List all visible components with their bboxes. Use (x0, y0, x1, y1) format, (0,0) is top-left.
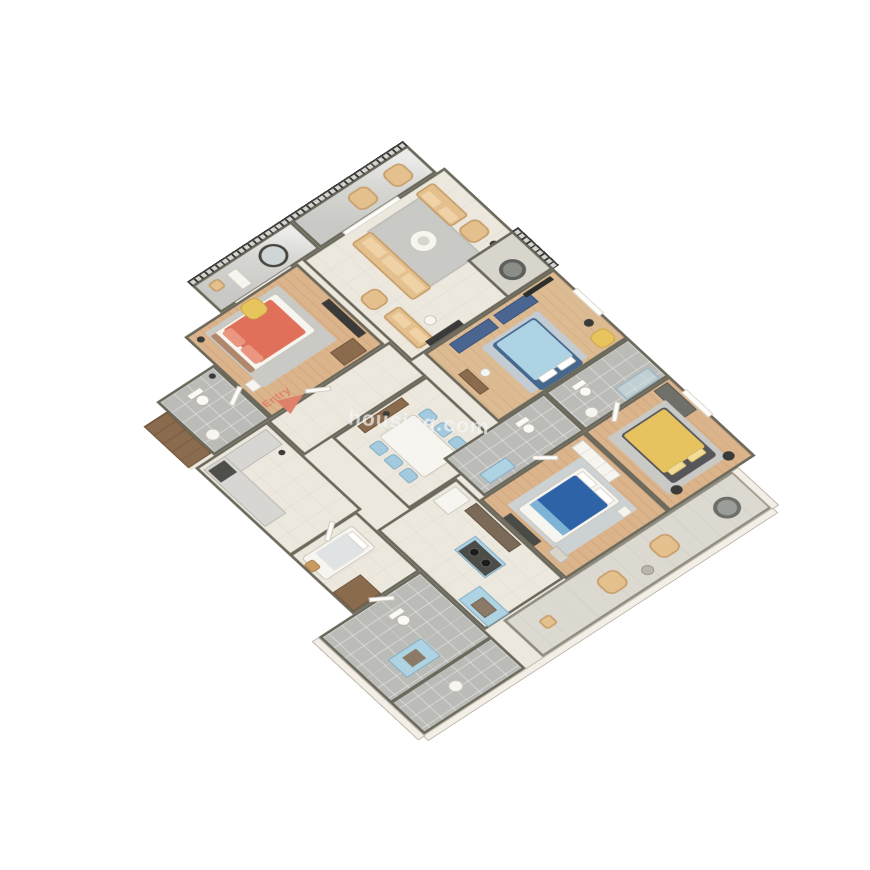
terrace-planter (538, 614, 559, 630)
table-lamp (277, 449, 287, 457)
washbasin (582, 405, 602, 420)
washbasin (202, 426, 223, 442)
master-door (532, 455, 558, 460)
terrace-side-table (639, 563, 657, 577)
stool (582, 317, 596, 328)
planter (207, 278, 227, 293)
balcony-armchair (345, 184, 382, 212)
sofa-cushion (392, 312, 413, 329)
balcony-bench (226, 268, 253, 290)
hob-top (458, 540, 502, 576)
bedside-stool (720, 449, 737, 462)
washbasin (445, 678, 466, 694)
side-table (421, 313, 439, 327)
papasan-chair (494, 255, 532, 285)
basin (402, 649, 426, 668)
floor-lamp (195, 335, 206, 344)
egg-chair (707, 492, 746, 523)
desk-chair (478, 367, 493, 379)
terrace-armchair (646, 531, 684, 561)
balcony-armchair (380, 161, 417, 189)
armchair (357, 286, 391, 312)
lamp (207, 372, 217, 380)
floorplan-stage: Entry (0, 0, 870, 870)
kitchen-sink (471, 597, 497, 618)
terrace-armchair (593, 567, 631, 597)
